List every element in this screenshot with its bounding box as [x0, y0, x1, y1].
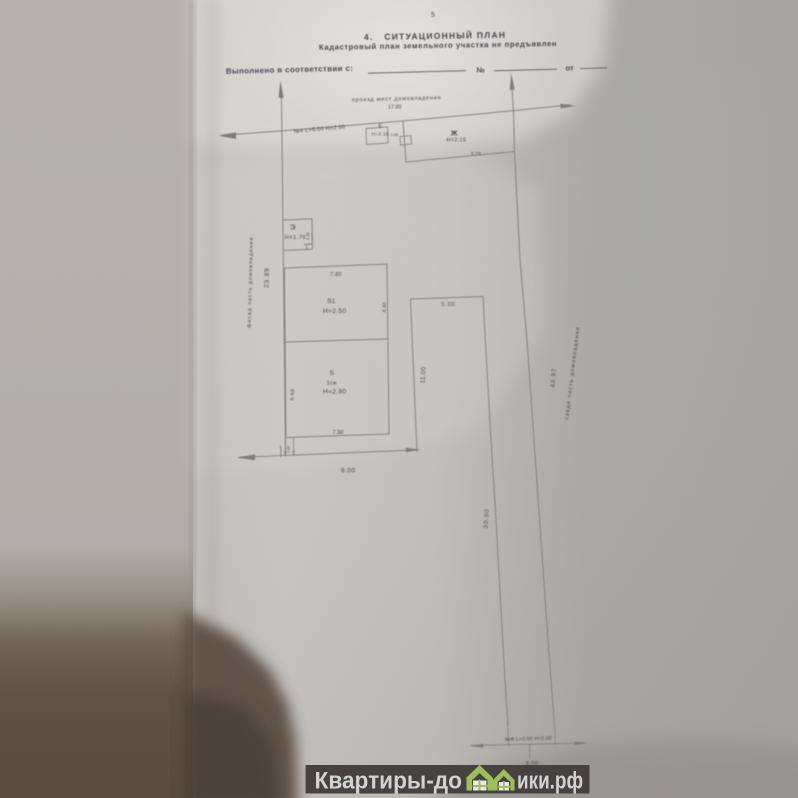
svg-text:Квартиры-до: Квартиры-до [315, 768, 463, 795]
svg-text:ики.рф: ики.рф [517, 768, 583, 795]
